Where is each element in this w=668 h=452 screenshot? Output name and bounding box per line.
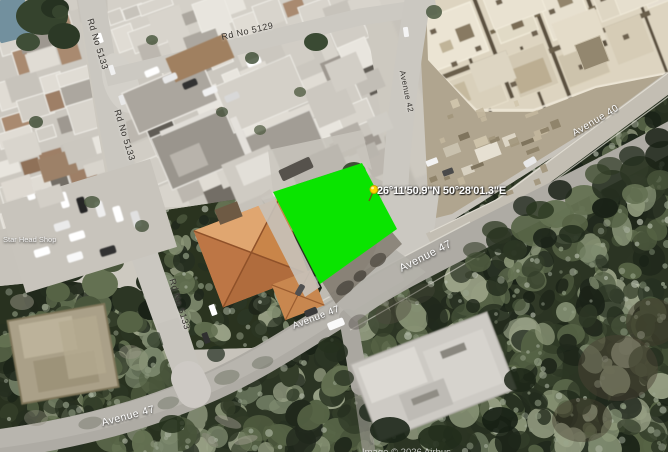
svg-text:Image © 2026 Airbus: Image © 2026 Airbus — [362, 447, 451, 452]
svg-text:26°11'50.9"N 50°28'01.3"E: 26°11'50.9"N 50°28'01.3"E — [377, 185, 506, 197]
svg-text:Star Head Shop: Star Head Shop — [3, 235, 56, 244]
